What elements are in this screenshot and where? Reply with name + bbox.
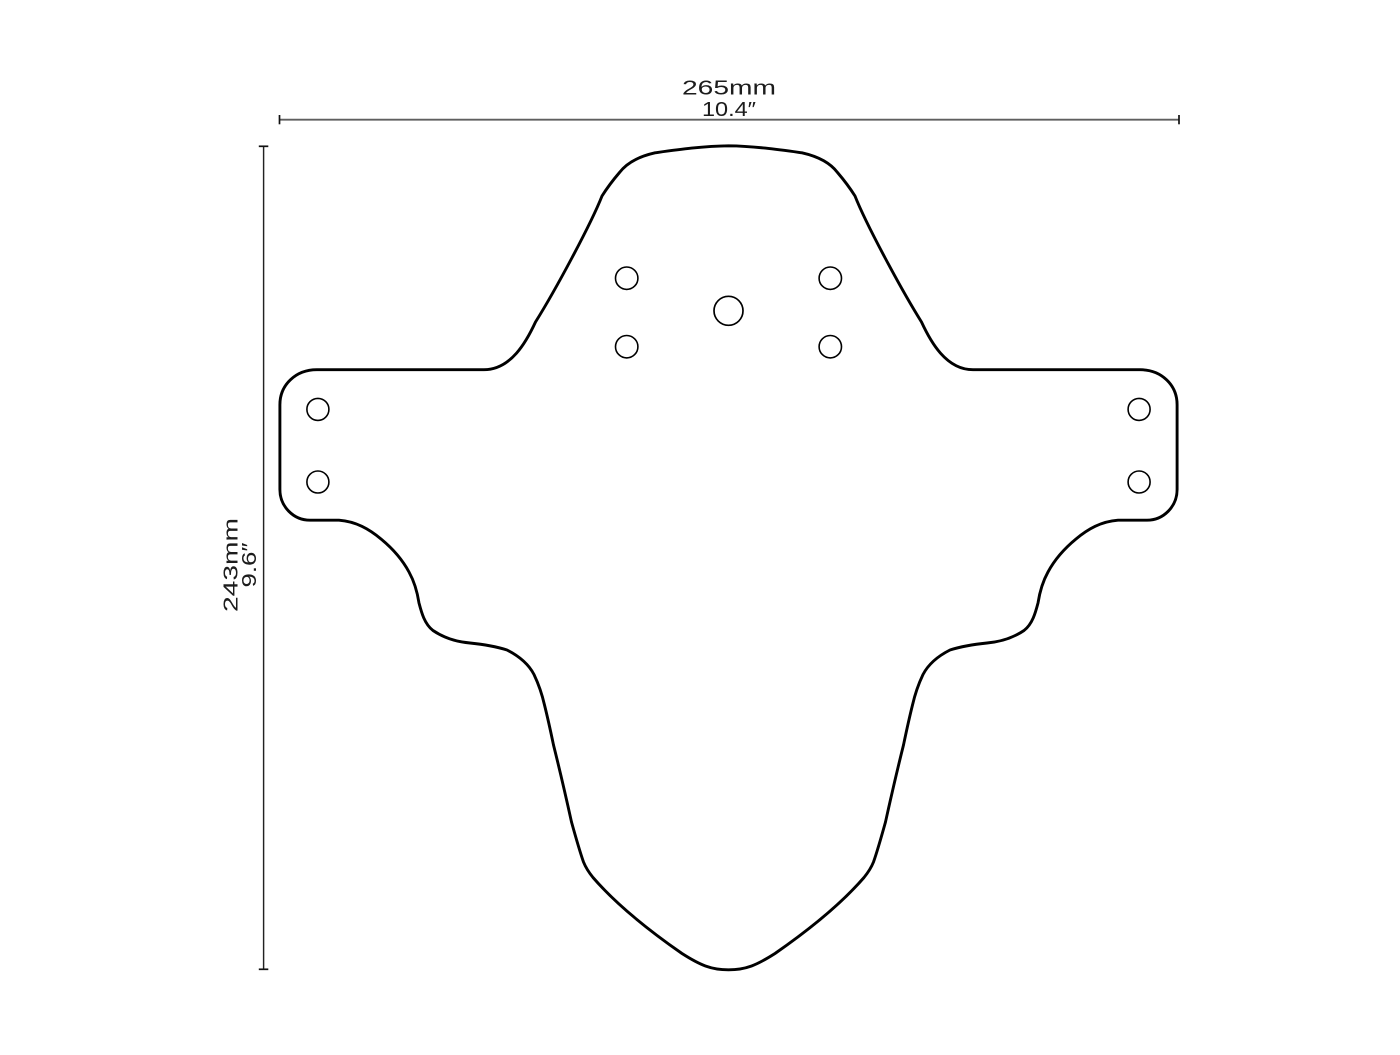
- svg-text:265mm: 265mm: [682, 78, 776, 100]
- svg-text:10.4″: 10.4″: [702, 99, 756, 121]
- svg-text:9.6″: 9.6″: [239, 543, 261, 588]
